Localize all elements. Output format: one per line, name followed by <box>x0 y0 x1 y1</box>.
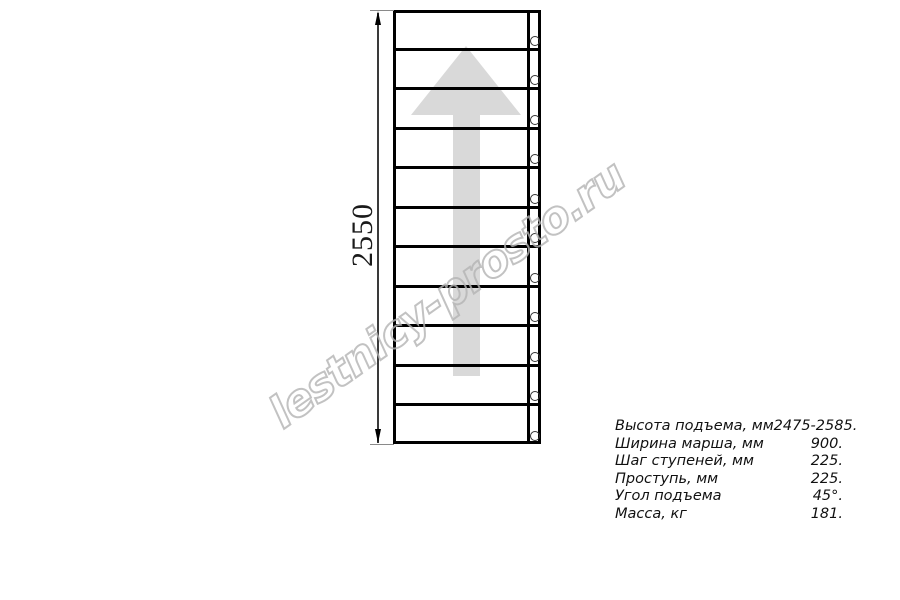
tread-divider-line <box>393 166 541 169</box>
spec-row: Угол подъема45°. <box>615 488 843 506</box>
tread-divider-line <box>393 245 541 248</box>
mount-hole-icon <box>530 154 540 164</box>
tread-divider-line <box>393 324 541 327</box>
spec-label: Проступь, мм <box>615 471 718 489</box>
mount-hole-icon <box>530 391 540 401</box>
spec-value: 181. <box>811 506 843 524</box>
dimension-arrow-down-icon <box>375 429 381 443</box>
extension-line-top <box>370 10 394 11</box>
dimension-arrow-up-icon <box>375 11 381 25</box>
spec-label: Масса, кг <box>615 506 687 524</box>
mount-hole-icon <box>530 273 540 283</box>
tread-divider-line <box>393 403 541 406</box>
tread-divider-line <box>393 127 541 130</box>
spec-row: Ширина марша, мм900. <box>615 436 843 454</box>
mount-hole-icon <box>530 431 540 441</box>
tread-divider-line <box>393 285 541 288</box>
mount-hole-icon <box>530 312 540 322</box>
tread-divider-line <box>393 364 541 367</box>
mount-hole-icon <box>530 352 540 362</box>
mount-hole-icon <box>530 194 540 204</box>
spec-table: Высота подъема, мм2475-2585.Ширина марша… <box>615 418 843 524</box>
spec-label: Шаг ступеней, мм <box>615 453 754 471</box>
mount-hole-icon <box>530 75 540 85</box>
mount-hole-icon <box>530 115 540 125</box>
spec-row: Масса, кг181. <box>615 506 843 524</box>
tread-divider-line <box>393 48 541 51</box>
spec-value: 225. <box>811 453 843 471</box>
spec-value: 2475-2585. <box>774 418 858 436</box>
spec-row: Проступь, мм225. <box>615 471 843 489</box>
spec-value: 900. <box>811 436 843 454</box>
extension-line-bottom <box>370 444 394 445</box>
mount-hole-icon <box>530 233 540 243</box>
spec-value: 45°. <box>813 488 843 506</box>
spec-label: Высота подъема, мм <box>615 418 774 436</box>
drawing-canvas: 2550 lestnicy-prosto.ru Высота подъема, … <box>0 0 900 600</box>
tread-divider-line <box>393 87 541 90</box>
spec-label: Угол подъема <box>615 488 722 506</box>
mount-hole-icon <box>530 36 540 46</box>
tread-divider-line <box>393 206 541 209</box>
dimension-label: 2550 <box>346 195 380 275</box>
staircase-outline <box>393 10 541 444</box>
spec-label: Ширина марша, мм <box>615 436 764 454</box>
spec-value: 225. <box>811 471 843 489</box>
stringer-line <box>527 10 530 444</box>
spec-row: Шаг ступеней, мм225. <box>615 453 843 471</box>
spec-row: Высота подъема, мм2475-2585. <box>615 418 843 436</box>
